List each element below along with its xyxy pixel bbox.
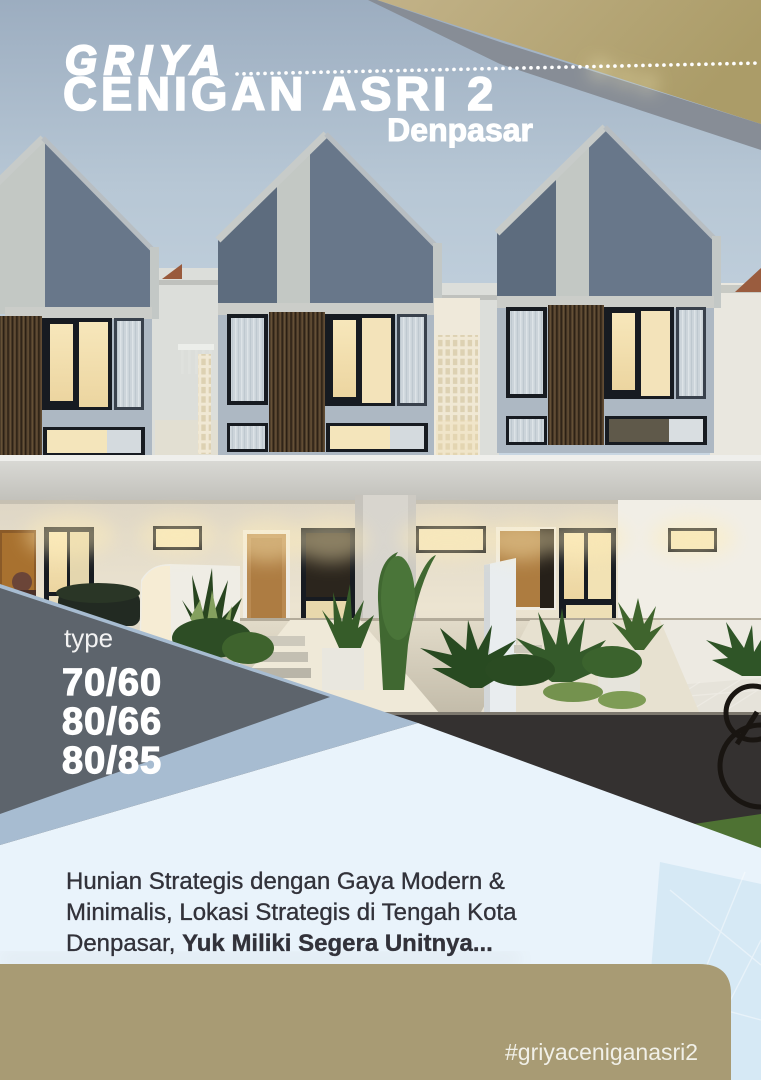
svg-text:Minimalis, Lokasi Strategis di: Minimalis, Lokasi Strategis di Tengah Ko…: [66, 899, 517, 926]
svg-text:Denpasar: Denpasar: [387, 112, 533, 148]
svg-text:70/60: 70/60: [62, 662, 162, 704]
svg-text:Hunian Strategis dengan Gaya M: Hunian Strategis dengan Gaya Modern &: [66, 868, 505, 895]
svg-text:#griyaceniganasri2: #griyaceniganasri2: [505, 1039, 698, 1065]
svg-text:type: type: [64, 623, 113, 653]
svg-text:80/85: 80/85: [62, 740, 162, 782]
svg-text:Denpasar, Yuk Miliki Segera Un: Denpasar, Yuk Miliki Segera Unitnya...: [66, 930, 493, 957]
svg-text:80/66: 80/66: [62, 701, 162, 743]
